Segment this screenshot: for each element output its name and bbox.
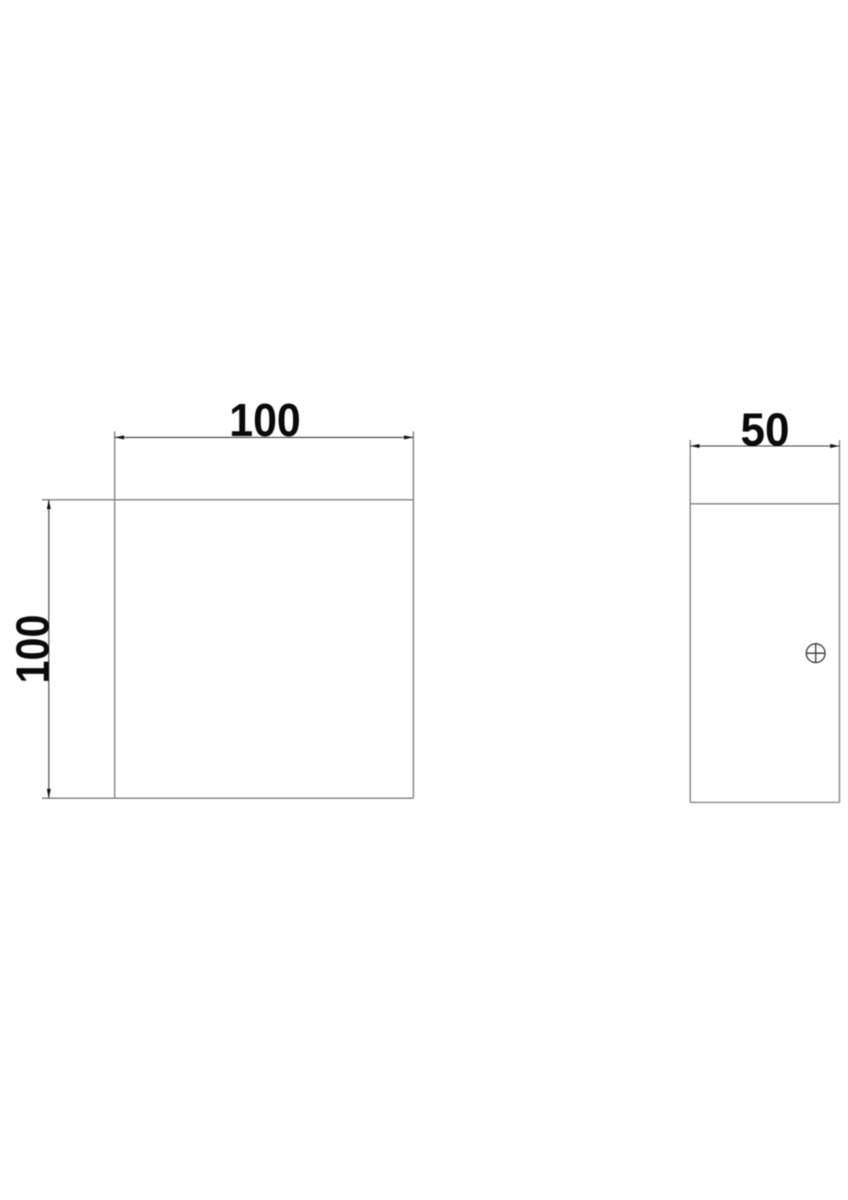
svg-text:100: 100 xyxy=(7,615,59,684)
svg-text:50: 50 xyxy=(741,404,790,456)
svg-text:100: 100 xyxy=(229,394,301,446)
